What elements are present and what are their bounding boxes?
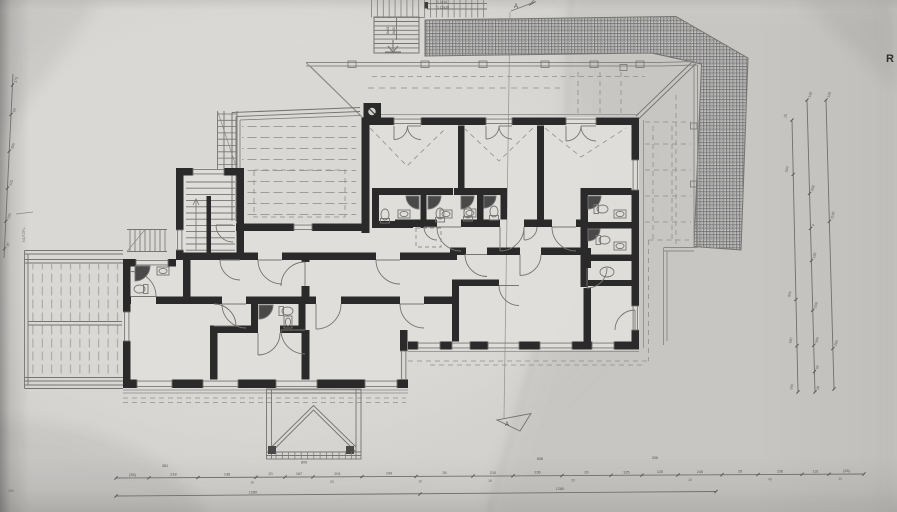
svg-text:10: 10 (250, 480, 254, 484)
svg-text:40: 40 (768, 478, 772, 482)
svg-text:236: 236 (534, 471, 540, 475)
svg-text:26: 26 (442, 471, 446, 475)
svg-text:809: 809 (301, 461, 307, 465)
svg-text:10: 10 (418, 479, 422, 483)
svg-text:10: 10 (838, 477, 842, 481)
svg-text:838: 838 (537, 457, 543, 461)
svg-text:167: 167 (296, 472, 302, 476)
svg-text:201: 201 (334, 472, 340, 476)
svg-text:125: 125 (657, 470, 663, 474)
svg-text:1280: 1280 (249, 491, 257, 495)
svg-text:199: 199 (386, 472, 392, 476)
svg-text:15: 15 (488, 479, 492, 483)
svg-text:138: 138 (224, 472, 230, 476)
svg-text:A: A (505, 422, 509, 428)
svg-text:R: R (886, 53, 894, 65)
svg-text:131: 131 (812, 469, 818, 473)
svg-text:20: 20 (330, 480, 334, 484)
svg-text:26: 26 (738, 470, 742, 474)
svg-text:206: 206 (652, 456, 658, 460)
svg-text:20: 20 (571, 479, 575, 483)
svg-text:(35): (35) (129, 473, 136, 477)
svg-text:218: 218 (170, 473, 176, 477)
svg-text:381: 381 (162, 464, 168, 468)
svg-text:325: 325 (623, 470, 629, 474)
svg-text:20: 20 (584, 470, 588, 474)
svg-text:240: 240 (697, 470, 703, 474)
svg-text:(26): (26) (843, 469, 850, 473)
svg-text:290: 290 (8, 489, 14, 493)
svg-text:NUTZFL.: NUTZFL. (22, 226, 26, 242)
svg-text:A: A (514, 4, 518, 10)
svg-text:1 13x30: 1 13x30 (437, 6, 449, 10)
svg-text:10: 10 (688, 478, 692, 482)
svg-text:236: 236 (777, 469, 783, 473)
svg-text:1 1x16: 1 1x16 (437, 0, 447, 4)
svg-text:8x30: 8x30 (392, 27, 396, 34)
svg-text:8x18: 8x18 (386, 27, 390, 34)
svg-text:20: 20 (268, 472, 272, 476)
svg-text:210: 210 (490, 471, 496, 475)
svg-text:1280: 1280 (556, 487, 564, 491)
